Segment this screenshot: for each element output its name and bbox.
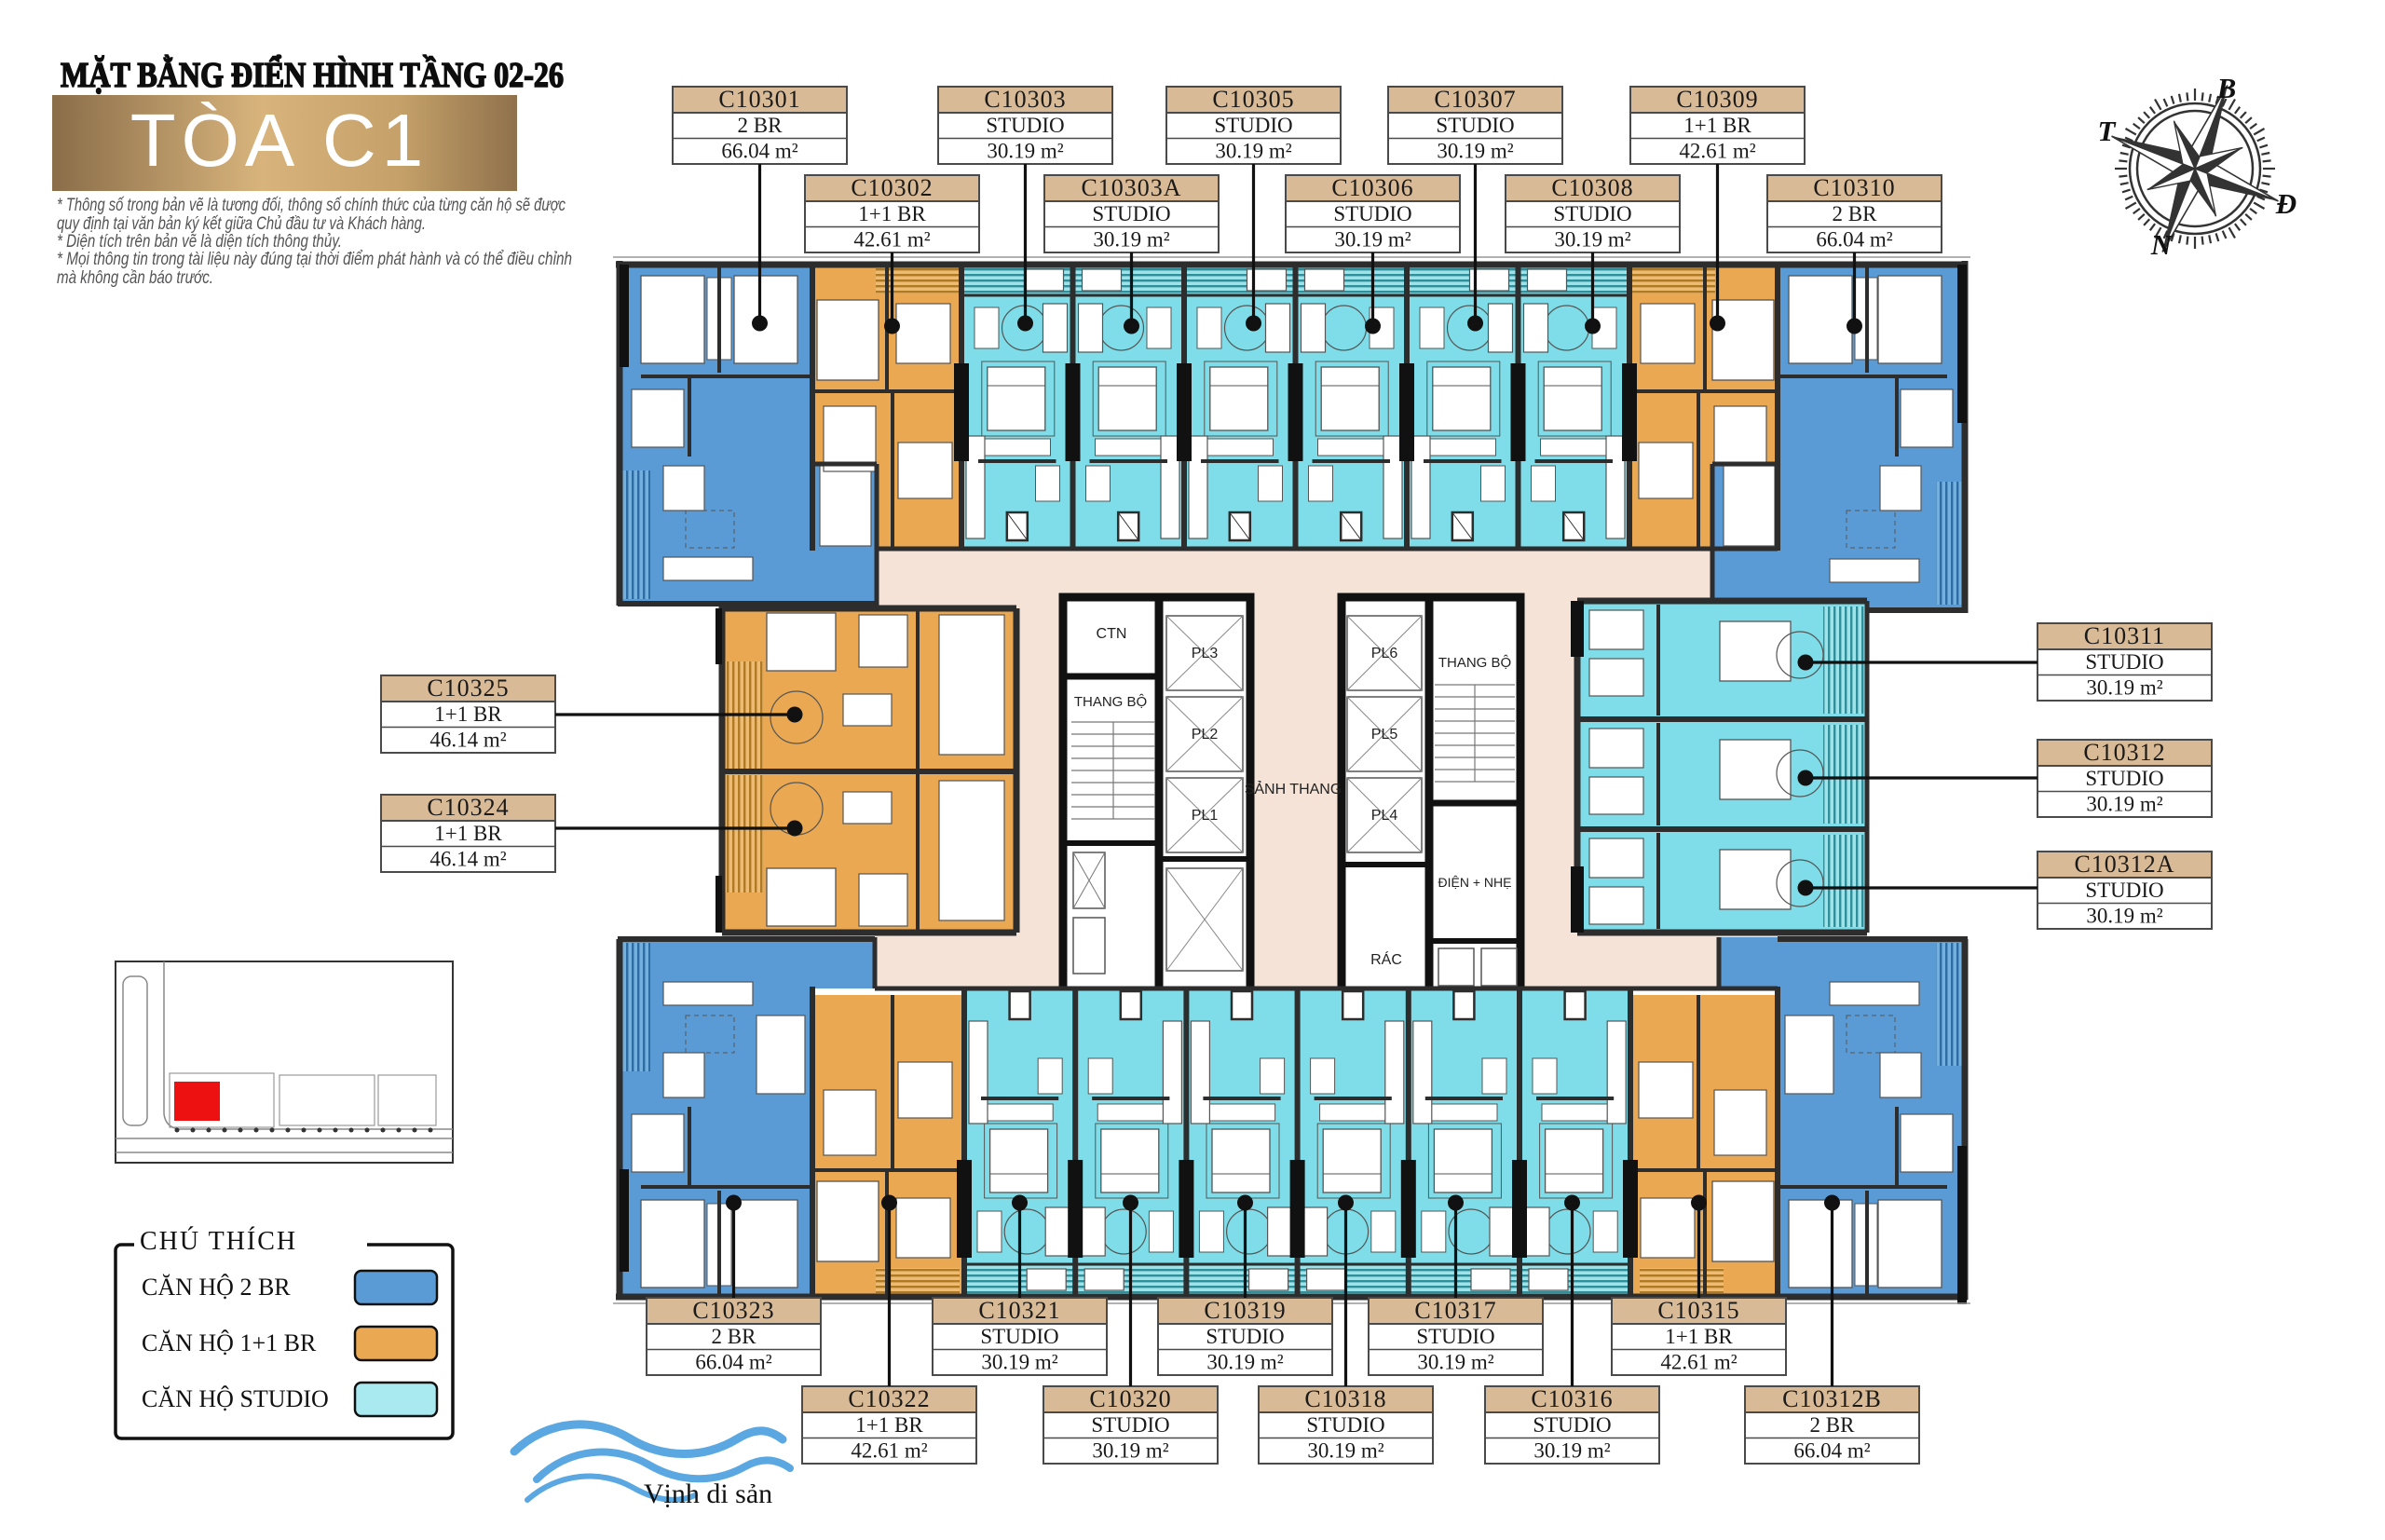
svg-text:T: T xyxy=(2098,115,2117,147)
svg-text:C10312B: C10312B xyxy=(1782,1385,1882,1412)
svg-text:C10303A: C10303A xyxy=(1081,174,1181,201)
svg-text:STUDIO: STUDIO xyxy=(1533,1413,1611,1437)
svg-text:PL6: PL6 xyxy=(1371,646,1398,661)
svg-text:C10315: C10315 xyxy=(1657,1297,1739,1324)
svg-text:C10320: C10320 xyxy=(1089,1385,1171,1412)
svg-text:C10321: C10321 xyxy=(978,1297,1060,1324)
svg-text:C10312: C10312 xyxy=(2083,739,2165,766)
svg-text:C10325: C10325 xyxy=(427,675,509,702)
svg-text:PL5: PL5 xyxy=(1371,727,1398,743)
svg-text:B: B xyxy=(2216,72,2237,104)
svg-text:PL2: PL2 xyxy=(1192,727,1219,743)
svg-text:CHÚ THÍCH: CHÚ THÍCH xyxy=(140,1227,297,1256)
svg-text:30.19 m²: 30.19 m² xyxy=(1437,140,1513,163)
svg-text:1+1 BR: 1+1 BR xyxy=(1665,1325,1733,1348)
svg-text:C10319: C10319 xyxy=(1204,1297,1286,1324)
svg-text:STUDIO: STUDIO xyxy=(980,1325,1058,1348)
svg-text:30.19 m²: 30.19 m² xyxy=(2086,905,2162,928)
svg-text:2 BR: 2 BR xyxy=(1810,1413,1856,1437)
svg-text:STUDIO: STUDIO xyxy=(1092,202,1170,225)
svg-text:30.19 m²: 30.19 m² xyxy=(981,1351,1057,1374)
svg-text:SẢNH THANG: SẢNH THANG xyxy=(1245,780,1342,797)
svg-text:C10318: C10318 xyxy=(1304,1385,1386,1412)
svg-text:30.19 m²: 30.19 m² xyxy=(2086,793,2162,816)
svg-text:RÁC: RÁC xyxy=(1370,950,1402,968)
svg-text:46.14 m²: 46.14 m² xyxy=(429,848,506,871)
svg-text:30.19 m²: 30.19 m² xyxy=(1533,1439,1610,1463)
svg-text:MẶT BẰNG ĐIỂN HÌNH TẦNG 02-26: MẶT BẰNG ĐIỂN HÌNH TẦNG 02-26 xyxy=(61,55,564,95)
svg-text:Đ: Đ xyxy=(2275,187,2296,220)
svg-text:42.61 m²: 42.61 m² xyxy=(853,228,930,252)
svg-text:66.04 m²: 66.04 m² xyxy=(1816,228,1892,252)
svg-text:66.04 m²: 66.04 m² xyxy=(695,1351,771,1374)
svg-text:1+1 BR: 1+1 BR xyxy=(1683,114,1751,137)
svg-text:CĂN HỘ 1+1 BR: CĂN HỘ 1+1 BR xyxy=(142,1329,317,1356)
svg-text:* Thông số trong bản vẽ là tươ: * Thông số trong bản vẽ là tương đối, th… xyxy=(57,195,566,215)
svg-text:Vịnh di sản: Vịnh di sản xyxy=(644,1479,772,1509)
svg-text:30.19 m²: 30.19 m² xyxy=(1092,1439,1168,1463)
svg-text:C10323: C10323 xyxy=(692,1297,774,1324)
svg-text:30.19 m²: 30.19 m² xyxy=(1334,228,1411,252)
svg-text:42.61 m²: 42.61 m² xyxy=(1660,1351,1737,1374)
svg-text:PL1: PL1 xyxy=(1192,808,1219,824)
svg-text:CTN: CTN xyxy=(1097,626,1127,642)
svg-text:THANG BỘ: THANG BỘ xyxy=(1074,694,1147,710)
svg-text:42.61 m²: 42.61 m² xyxy=(1679,140,1755,163)
svg-text:PL3: PL3 xyxy=(1192,646,1219,661)
svg-text:STUDIO: STUDIO xyxy=(1333,202,1411,225)
svg-text:C10306: C10306 xyxy=(1331,174,1413,201)
svg-text:STUDIO: STUDIO xyxy=(2085,650,2163,674)
svg-text:30.19 m²: 30.19 m² xyxy=(2086,676,2162,700)
svg-text:C10312A: C10312A xyxy=(2074,851,2174,878)
svg-text:N: N xyxy=(2150,228,2174,261)
svg-text:STUDIO: STUDIO xyxy=(1214,114,1292,137)
svg-text:ĐIỆN + NHẸ: ĐIỆN + NHẸ xyxy=(1438,875,1512,890)
svg-text:C10308: C10308 xyxy=(1551,174,1633,201)
svg-text:2 BR: 2 BR xyxy=(738,114,784,137)
svg-text:2 BR: 2 BR xyxy=(712,1325,757,1348)
svg-text:STUDIO: STUDIO xyxy=(2085,879,2163,902)
svg-text:66.04 m²: 66.04 m² xyxy=(1793,1439,1870,1463)
svg-text:TÒA C1: TÒA C1 xyxy=(130,99,429,182)
svg-text:30.19 m²: 30.19 m² xyxy=(1307,1439,1383,1463)
svg-text:C10322: C10322 xyxy=(848,1385,930,1412)
svg-text:PL4: PL4 xyxy=(1371,808,1398,824)
svg-text:STUDIO: STUDIO xyxy=(1091,1413,1169,1437)
svg-text:CĂN HỘ STUDIO: CĂN HỘ STUDIO xyxy=(142,1385,329,1412)
svg-text:STUDIO: STUDIO xyxy=(1553,202,1631,225)
svg-text:1+1 BR: 1+1 BR xyxy=(434,702,502,726)
svg-text:30.19 m²: 30.19 m² xyxy=(1417,1351,1493,1374)
svg-text:C10301: C10301 xyxy=(718,86,800,113)
svg-text:30.19 m²: 30.19 m² xyxy=(987,140,1063,163)
svg-text:C10302: C10302 xyxy=(851,174,933,201)
svg-text:C10303: C10303 xyxy=(984,86,1066,113)
svg-text:1+1 BR: 1+1 BR xyxy=(858,202,926,225)
svg-text:66.04 m²: 66.04 m² xyxy=(721,140,797,163)
svg-text:30.19 m²: 30.19 m² xyxy=(1093,228,1169,252)
svg-text:30.19 m²: 30.19 m² xyxy=(1215,140,1291,163)
svg-text:C10305: C10305 xyxy=(1212,86,1294,113)
svg-text:1+1 BR: 1+1 BR xyxy=(855,1413,923,1437)
svg-text:30.19 m²: 30.19 m² xyxy=(1206,1351,1283,1374)
svg-text:STUDIO: STUDIO xyxy=(1306,1413,1384,1437)
svg-text:* Mọi thông tin trong tài liệu: * Mọi thông tin trong tài liệu này đúng … xyxy=(57,249,572,269)
svg-text:STUDIO: STUDIO xyxy=(1436,114,1514,137)
svg-text:THANG BỘ: THANG BỘ xyxy=(1438,655,1511,671)
svg-text:C10324: C10324 xyxy=(427,794,509,821)
svg-text:1+1 BR: 1+1 BR xyxy=(434,822,502,845)
svg-text:STUDIO: STUDIO xyxy=(1206,1325,1284,1348)
svg-text:C10310: C10310 xyxy=(1813,174,1895,201)
svg-text:CĂN HỘ 2 BR: CĂN HỘ 2 BR xyxy=(142,1274,291,1301)
svg-text:C10311: C10311 xyxy=(2084,622,2165,649)
svg-text:C10309: C10309 xyxy=(1676,86,1758,113)
svg-text:STUDIO: STUDIO xyxy=(1416,1325,1494,1348)
svg-text:C10316: C10316 xyxy=(1531,1385,1613,1412)
svg-text:46.14 m²: 46.14 m² xyxy=(429,729,506,752)
svg-text:30.19 m²: 30.19 m² xyxy=(1554,228,1630,252)
svg-text:C10307: C10307 xyxy=(1434,86,1516,113)
svg-text:2 BR: 2 BR xyxy=(1833,202,1878,225)
svg-text:STUDIO: STUDIO xyxy=(2085,767,2163,790)
svg-text:42.61 m²: 42.61 m² xyxy=(851,1439,927,1463)
svg-text:C10317: C10317 xyxy=(1414,1297,1496,1324)
svg-text:STUDIO: STUDIO xyxy=(986,114,1064,137)
svg-text:mà không cần báo trước.: mà không cần báo trước. xyxy=(57,267,213,288)
